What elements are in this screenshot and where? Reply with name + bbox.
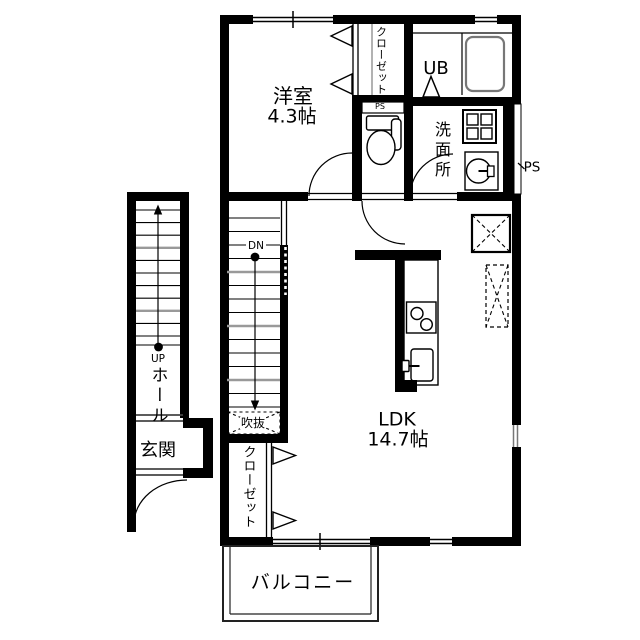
wall-leftwing-top: [127, 192, 189, 201]
entrance-door-arc: [134, 480, 187, 524]
bathtub: [466, 37, 504, 91]
wall-closet-ub: [404, 24, 413, 201]
dn-arrow-head: [251, 401, 259, 411]
closet-bottom-label: クローゼット: [242, 445, 255, 529]
wall-leftwing-left: [127, 192, 136, 532]
window-ub-gap: [475, 14, 497, 25]
stove-burner-2: [421, 319, 433, 331]
window-bottom-small-gap: [430, 536, 452, 547]
up-start-dot: [154, 343, 163, 352]
closet-top-label: クローゼット: [376, 26, 387, 95]
washer-quad-2: [481, 114, 492, 125]
toilet: [362, 102, 404, 165]
wall-bottom: [220, 537, 521, 546]
wall-kitchen-notch: [395, 380, 417, 392]
kitchen-faucet: [402, 361, 409, 372]
pipe-space: [514, 104, 525, 194]
toilet-door-arc: [362, 201, 405, 244]
wall-ub-washroom: [413, 97, 512, 106]
stairs-up-label: UP: [151, 354, 165, 365]
closet-bottom-door-1: [273, 447, 296, 464]
westernroom-size: 4.3帖: [267, 108, 316, 127]
entrance-label: 玄関: [140, 442, 176, 460]
kitchen: [402, 260, 438, 385]
washroom-fixtures: [463, 110, 498, 190]
washroom-label: 洗面所: [433, 121, 449, 181]
washer-quad-3: [467, 128, 478, 139]
floor-plan: 洋室 4.3帖 クローゼット UB 洗面所 PS PS DN UP ホール 玄関…: [0, 0, 640, 640]
wall-toilet-left: [352, 95, 362, 201]
unit-bath-label: UB: [423, 60, 449, 78]
wall-porch-bottom: [183, 468, 213, 478]
wall-washroom-right-thick: [503, 97, 514, 201]
westernroom-door-arc: [309, 153, 352, 196]
closet-top-door-2: [331, 74, 352, 94]
ps-shaft-slot: [514, 104, 521, 194]
stove-burner-1: [411, 308, 423, 320]
ldk-name: LDK: [378, 411, 416, 430]
wall-right: [512, 15, 521, 546]
stairs-up: [136, 205, 180, 352]
void-label: 吹抜: [240, 417, 266, 429]
closet-top-door-1: [331, 26, 352, 46]
washer-pan: [463, 110, 496, 143]
floorplan-linework: [0, 0, 640, 640]
vanity-faucet: [488, 166, 495, 177]
window-right-gap: [511, 425, 522, 447]
ldk-size: 14.7帖: [367, 431, 428, 450]
wall-left: [220, 15, 229, 546]
wall-washroom-bottom: [457, 192, 512, 201]
washer-quad-4: [481, 128, 492, 139]
hall-label: ホール: [149, 366, 166, 426]
westernroom-name: 洋室: [273, 86, 313, 106]
stairs-down-label: DN: [246, 241, 266, 252]
dn-start-dot: [251, 253, 260, 262]
wall-westernroom-bottom: [220, 192, 308, 201]
ub-door-symbol: [423, 77, 440, 98]
closet-bottom-door-2: [273, 512, 296, 529]
wall-void-closet-divider: [220, 434, 288, 443]
wall-leftwing-right: [180, 192, 189, 418]
balcony-label: バルコニー: [251, 574, 356, 593]
ldk-equipment-boxes: [472, 215, 510, 327]
washer-quad-1: [467, 114, 478, 125]
ps-right-label: PS: [524, 161, 541, 175]
toilet-bowl: [367, 131, 395, 165]
ps-toilet-label: PS: [375, 103, 385, 111]
